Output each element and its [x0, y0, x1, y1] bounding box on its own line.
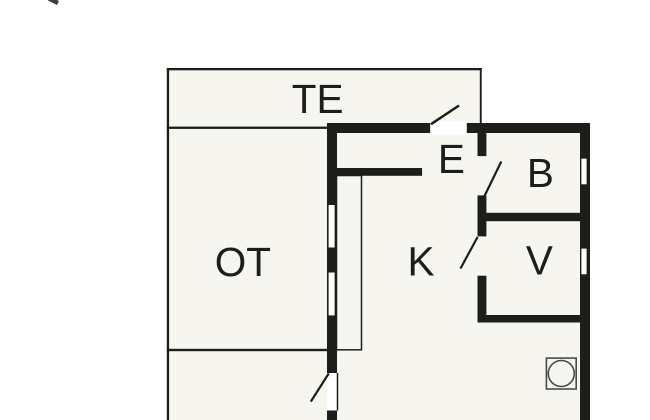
svg-text:E: E [438, 136, 465, 182]
svg-text:K: K [407, 239, 434, 285]
svg-text:TE: TE [292, 76, 344, 122]
svg-text:OT: OT [215, 239, 271, 285]
svg-text:B: B [527, 150, 554, 196]
svg-text:V: V [526, 237, 553, 283]
